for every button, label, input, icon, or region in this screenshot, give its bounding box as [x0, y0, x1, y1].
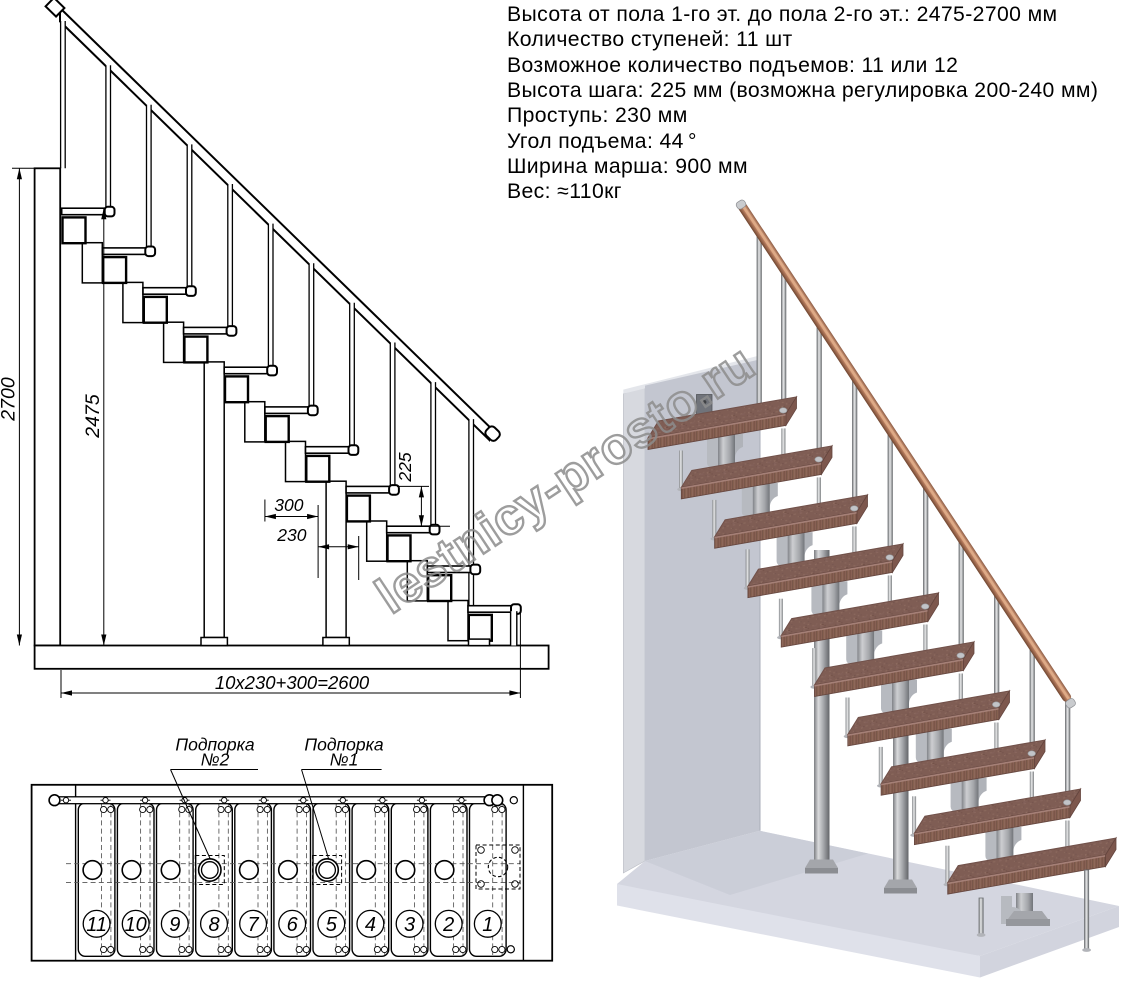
svg-text:9: 9	[169, 914, 180, 936]
svg-text:230: 230	[276, 525, 306, 545]
svg-text:225: 225	[395, 452, 415, 482]
svg-text:4: 4	[365, 914, 376, 936]
svg-text:10x230+300=2600: 10x230+300=2600	[215, 672, 370, 693]
svg-text:11: 11	[86, 914, 107, 936]
svg-text:2475: 2475	[82, 394, 104, 439]
svg-text:6: 6	[287, 914, 299, 936]
svg-text:1: 1	[482, 914, 493, 936]
svg-text:№2: №2	[201, 750, 230, 770]
svg-text:2: 2	[442, 914, 454, 936]
svg-text:5: 5	[326, 914, 338, 936]
svg-text:3: 3	[404, 914, 415, 936]
svg-text:2700: 2700	[0, 377, 20, 422]
svg-text:7: 7	[248, 914, 260, 936]
svg-text:№1: №1	[330, 750, 359, 770]
svg-text:10: 10	[125, 914, 147, 936]
svg-text:8: 8	[208, 914, 219, 936]
svg-text:300: 300	[274, 495, 303, 515]
